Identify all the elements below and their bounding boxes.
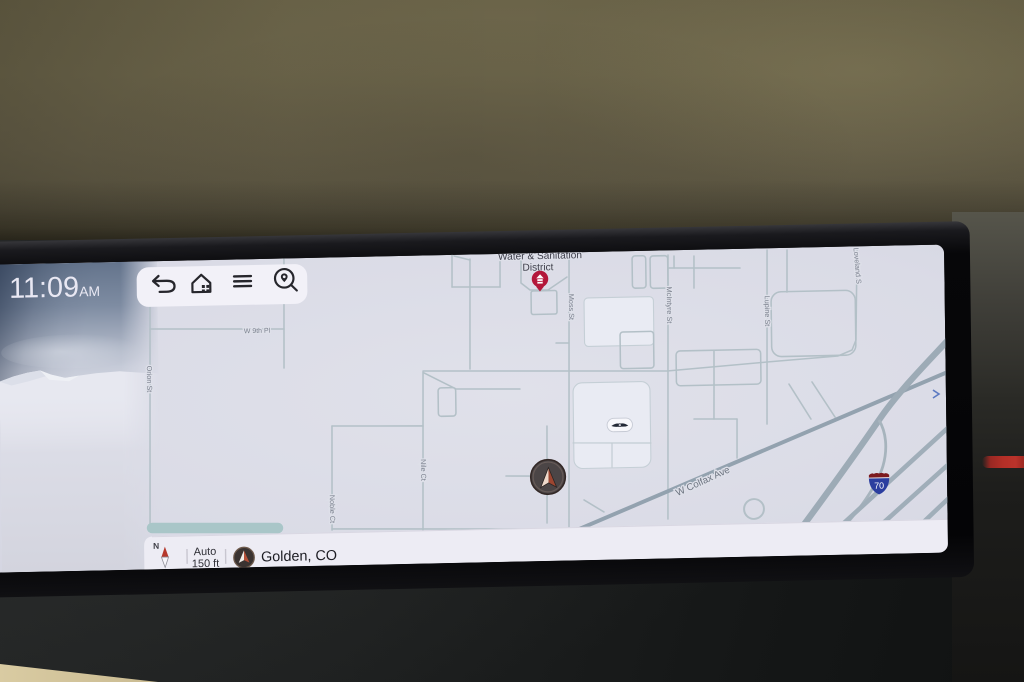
svg-text:N: N bbox=[153, 541, 159, 551]
svg-text:Orion St: Orion St bbox=[145, 366, 154, 393]
svg-text:McIntyre St: McIntyre St bbox=[665, 287, 674, 324]
svg-text:Lupine St: Lupine St bbox=[763, 296, 772, 327]
svg-text:Golden, CO: Golden, CO bbox=[261, 548, 337, 566]
svg-text:Nile Ct: Nile Ct bbox=[419, 459, 428, 481]
svg-text:Moss St: Moss St bbox=[567, 294, 576, 320]
svg-text:70: 70 bbox=[874, 481, 884, 491]
svg-text:W 9th Pl: W 9th Pl bbox=[244, 328, 271, 336]
svg-text:Noble Ct: Noble Ct bbox=[328, 495, 337, 523]
svg-text:Auto: Auto bbox=[194, 546, 217, 558]
